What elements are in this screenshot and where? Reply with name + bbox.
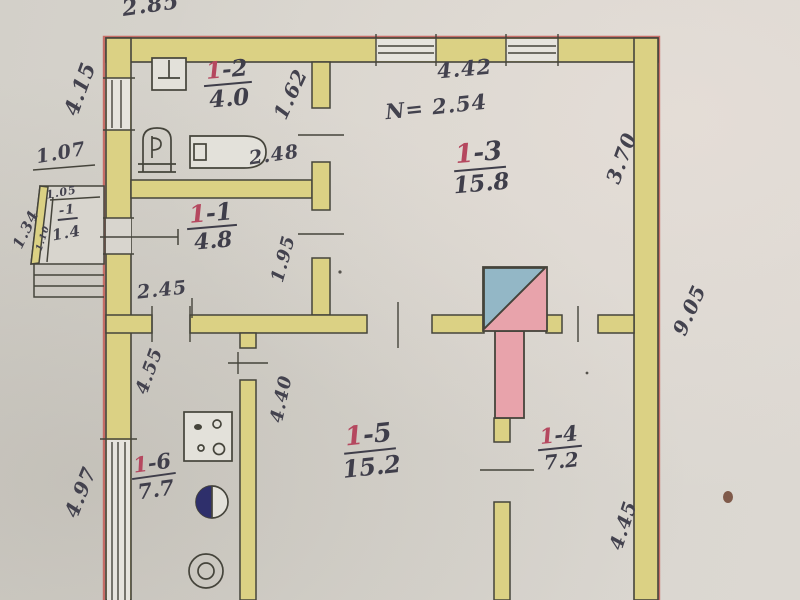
exterior-walls <box>106 38 658 600</box>
wall-mid-vertical-a <box>312 62 330 108</box>
room-1-3-suffix: -3 <box>472 136 503 168</box>
room-1-1-suffix: -1 <box>205 196 234 227</box>
wall-room4-b <box>494 502 510 600</box>
wall-bathroom-bottom <box>131 180 312 198</box>
porch-label: -1 <box>56 203 78 221</box>
stove-chimney <box>483 267 547 418</box>
toilet-icon <box>138 128 176 172</box>
room-1-5-label: 1-5 15.2 <box>335 419 405 483</box>
wall-mid-vertical-c <box>312 258 330 315</box>
floor-plan-scan: 2.85 4.15 1.07 1.05 1.34 1.10 1.62 2.48 … <box>0 0 800 600</box>
chimney-column <box>495 331 524 418</box>
dim-room3-width: 4.42 <box>436 56 493 82</box>
room-1-5-area: 15.2 <box>339 451 405 483</box>
room-1-6-suffix: -6 <box>146 448 173 476</box>
room-1-5-suffix: -5 <box>361 418 393 451</box>
wall-kitchen-lower <box>240 380 256 600</box>
wall-mid-horizontal-a <box>106 315 152 333</box>
kitchen-fixtures <box>184 412 232 588</box>
kitchen-sink-icon <box>196 486 228 518</box>
room-1-4-label: 1-4 7.2 <box>526 421 595 475</box>
room-1-2-label: 1-2 4.0 <box>194 55 262 114</box>
room-1-2-suffix: -2 <box>221 54 249 83</box>
porch-door-opening <box>100 218 178 254</box>
interior-walls <box>106 62 634 600</box>
wall-mid-horizontal-b <box>190 315 367 333</box>
wall-room4-a <box>494 418 510 442</box>
wall-mid-horizontal-d <box>546 315 562 333</box>
water-heater-icon <box>189 554 223 588</box>
washbasin-icon <box>152 58 186 90</box>
porch-steps <box>34 264 104 297</box>
room-1-3-area: 15.8 <box>448 169 514 199</box>
wall-mid-horizontal-e <box>598 315 634 333</box>
room-1-3-label: 1-3 15.8 <box>446 137 515 199</box>
wall-mid-vertical-b <box>312 162 330 210</box>
wall-mid-horizontal-c <box>432 315 484 333</box>
gas-stove-icon <box>184 412 232 461</box>
exterior-red-outline <box>104 37 659 600</box>
dim-room1-width: 2.45 <box>136 278 188 302</box>
wall-kitchen-top <box>240 333 256 348</box>
room-1-6-label: 1-6 7.7 <box>119 448 189 506</box>
room-1-1-label: 1-1 4.8 <box>178 197 246 256</box>
room-1-4-suffix: -4 <box>553 420 579 447</box>
